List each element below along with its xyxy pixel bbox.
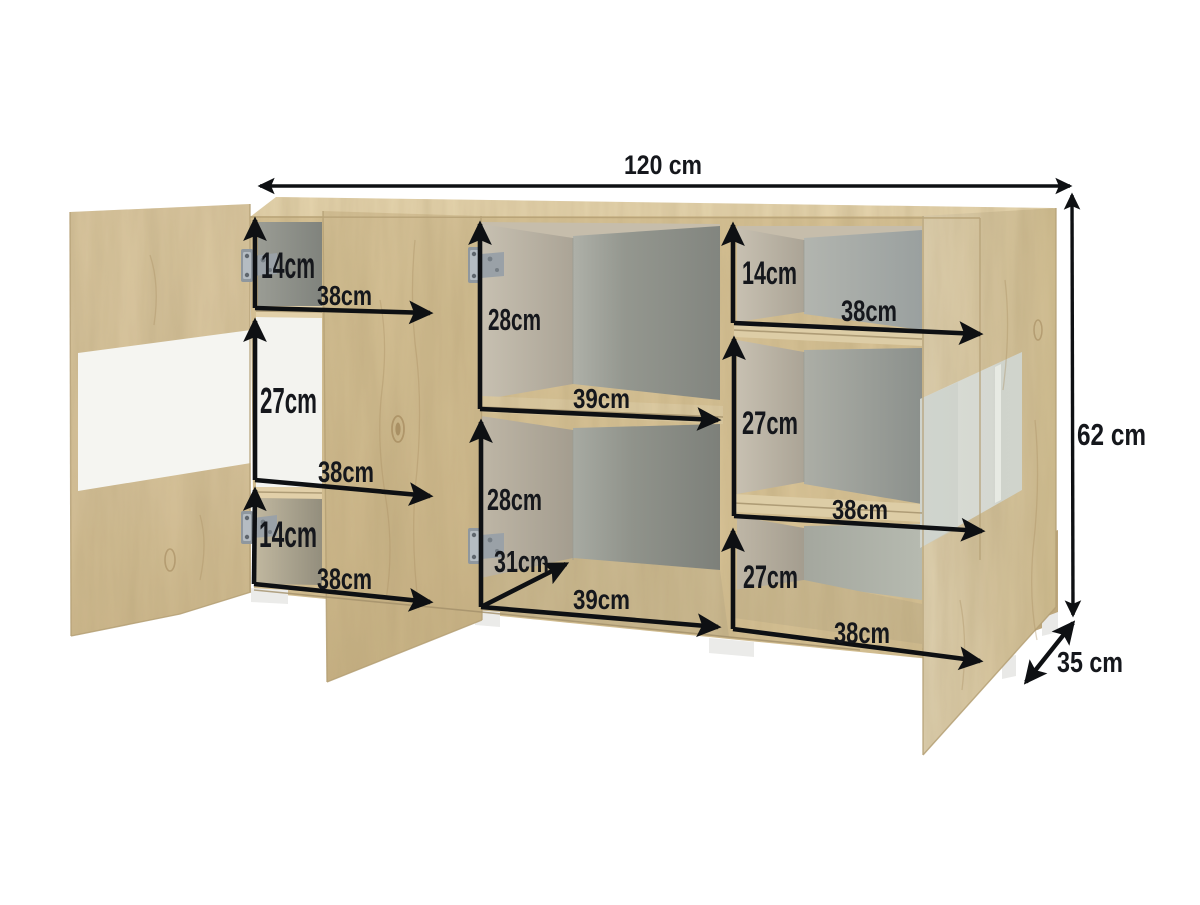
svg-text:39cm: 39cm	[573, 584, 630, 615]
svg-text:38cm: 38cm	[317, 563, 372, 596]
svg-text:14cm: 14cm	[259, 514, 317, 555]
svg-text:28cm: 28cm	[487, 482, 542, 517]
svg-text:27cm: 27cm	[743, 559, 798, 595]
svg-text:31cm: 31cm	[494, 544, 549, 579]
svg-text:27cm: 27cm	[742, 405, 798, 441]
svg-text:27cm: 27cm	[260, 380, 317, 421]
svg-text:14cm: 14cm	[261, 245, 315, 286]
svg-text:28cm: 28cm	[488, 302, 541, 337]
svg-text:38cm: 38cm	[832, 494, 888, 525]
svg-text:14cm: 14cm	[742, 255, 797, 291]
svg-text:38cm: 38cm	[318, 456, 374, 489]
svg-text:120 cm: 120 cm	[624, 150, 702, 180]
svg-text:38cm: 38cm	[317, 280, 372, 311]
svg-text:62 cm: 62 cm	[1077, 417, 1146, 452]
svg-text:35 cm: 35 cm	[1057, 647, 1123, 679]
svg-text:38cm: 38cm	[841, 295, 897, 328]
svg-text:39cm: 39cm	[573, 383, 630, 414]
svg-text:38cm: 38cm	[834, 617, 890, 650]
